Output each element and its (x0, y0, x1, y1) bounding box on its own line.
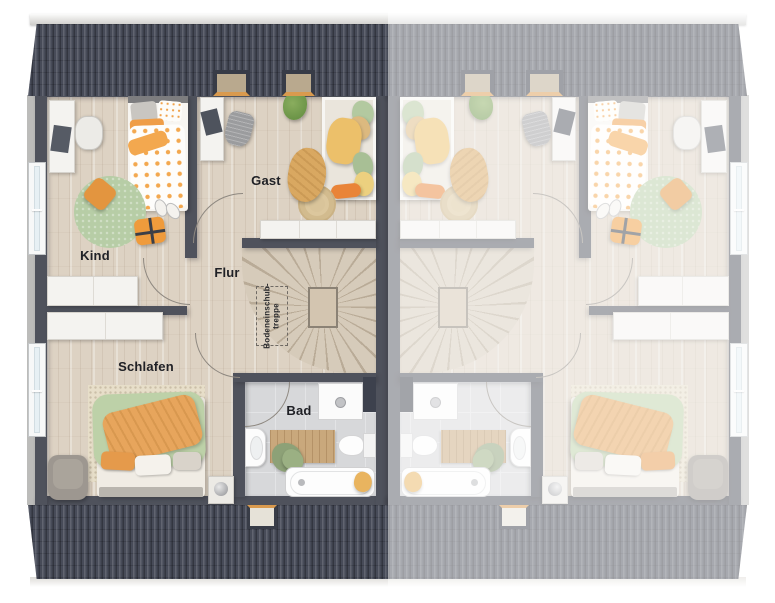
drain-icon (335, 397, 346, 408)
laptop-icon (50, 125, 71, 153)
mirror-fade-overlay (388, 0, 775, 603)
roof-window-icon (247, 505, 277, 529)
nightstand (208, 476, 234, 504)
attic-label-line2: treppe (272, 303, 281, 329)
room-label-gast: Gast (243, 173, 289, 188)
bed-schlafen (97, 397, 205, 497)
bathtub (285, 467, 375, 497)
outer-wall-left (35, 88, 47, 505)
party-wall (376, 88, 388, 505)
room-label-kind: Kind (73, 248, 117, 263)
wardrobe-kind (47, 276, 138, 306)
gift-cushion (133, 216, 166, 246)
attic-stairs-label: Bodeneinschub- treppe (256, 286, 288, 346)
wall-bad-top (233, 373, 376, 382)
wardrobe-schlafen (47, 312, 163, 340)
shower-tray (318, 383, 363, 420)
desk-chair (75, 116, 103, 150)
room-label-flur: Flur (207, 265, 247, 280)
window (28, 343, 46, 437)
roof-window-icon (213, 70, 250, 96)
window (28, 162, 46, 255)
daybed (322, 97, 376, 200)
attic-label-line1: Bodeneinschub- (263, 283, 272, 348)
floor-plan: Kind Gast Flur Schlafen Bad Bodeneinschu… (0, 0, 775, 603)
sideboard (260, 220, 376, 239)
shaft (363, 377, 376, 412)
stair-core (308, 287, 338, 328)
wall-gast-flur (242, 238, 376, 248)
armchair (48, 455, 88, 500)
lamp-icon (214, 482, 228, 496)
room-label-schlafen: Schlafen (111, 359, 181, 374)
bathroom-sink (245, 428, 266, 467)
wall-schlafen-bad (233, 373, 245, 497)
toilet (338, 433, 376, 458)
gable-trim (27, 95, 35, 505)
faucet-icon (298, 479, 305, 486)
room-label-bad: Bad (283, 403, 315, 418)
roof-window-icon (282, 70, 315, 96)
